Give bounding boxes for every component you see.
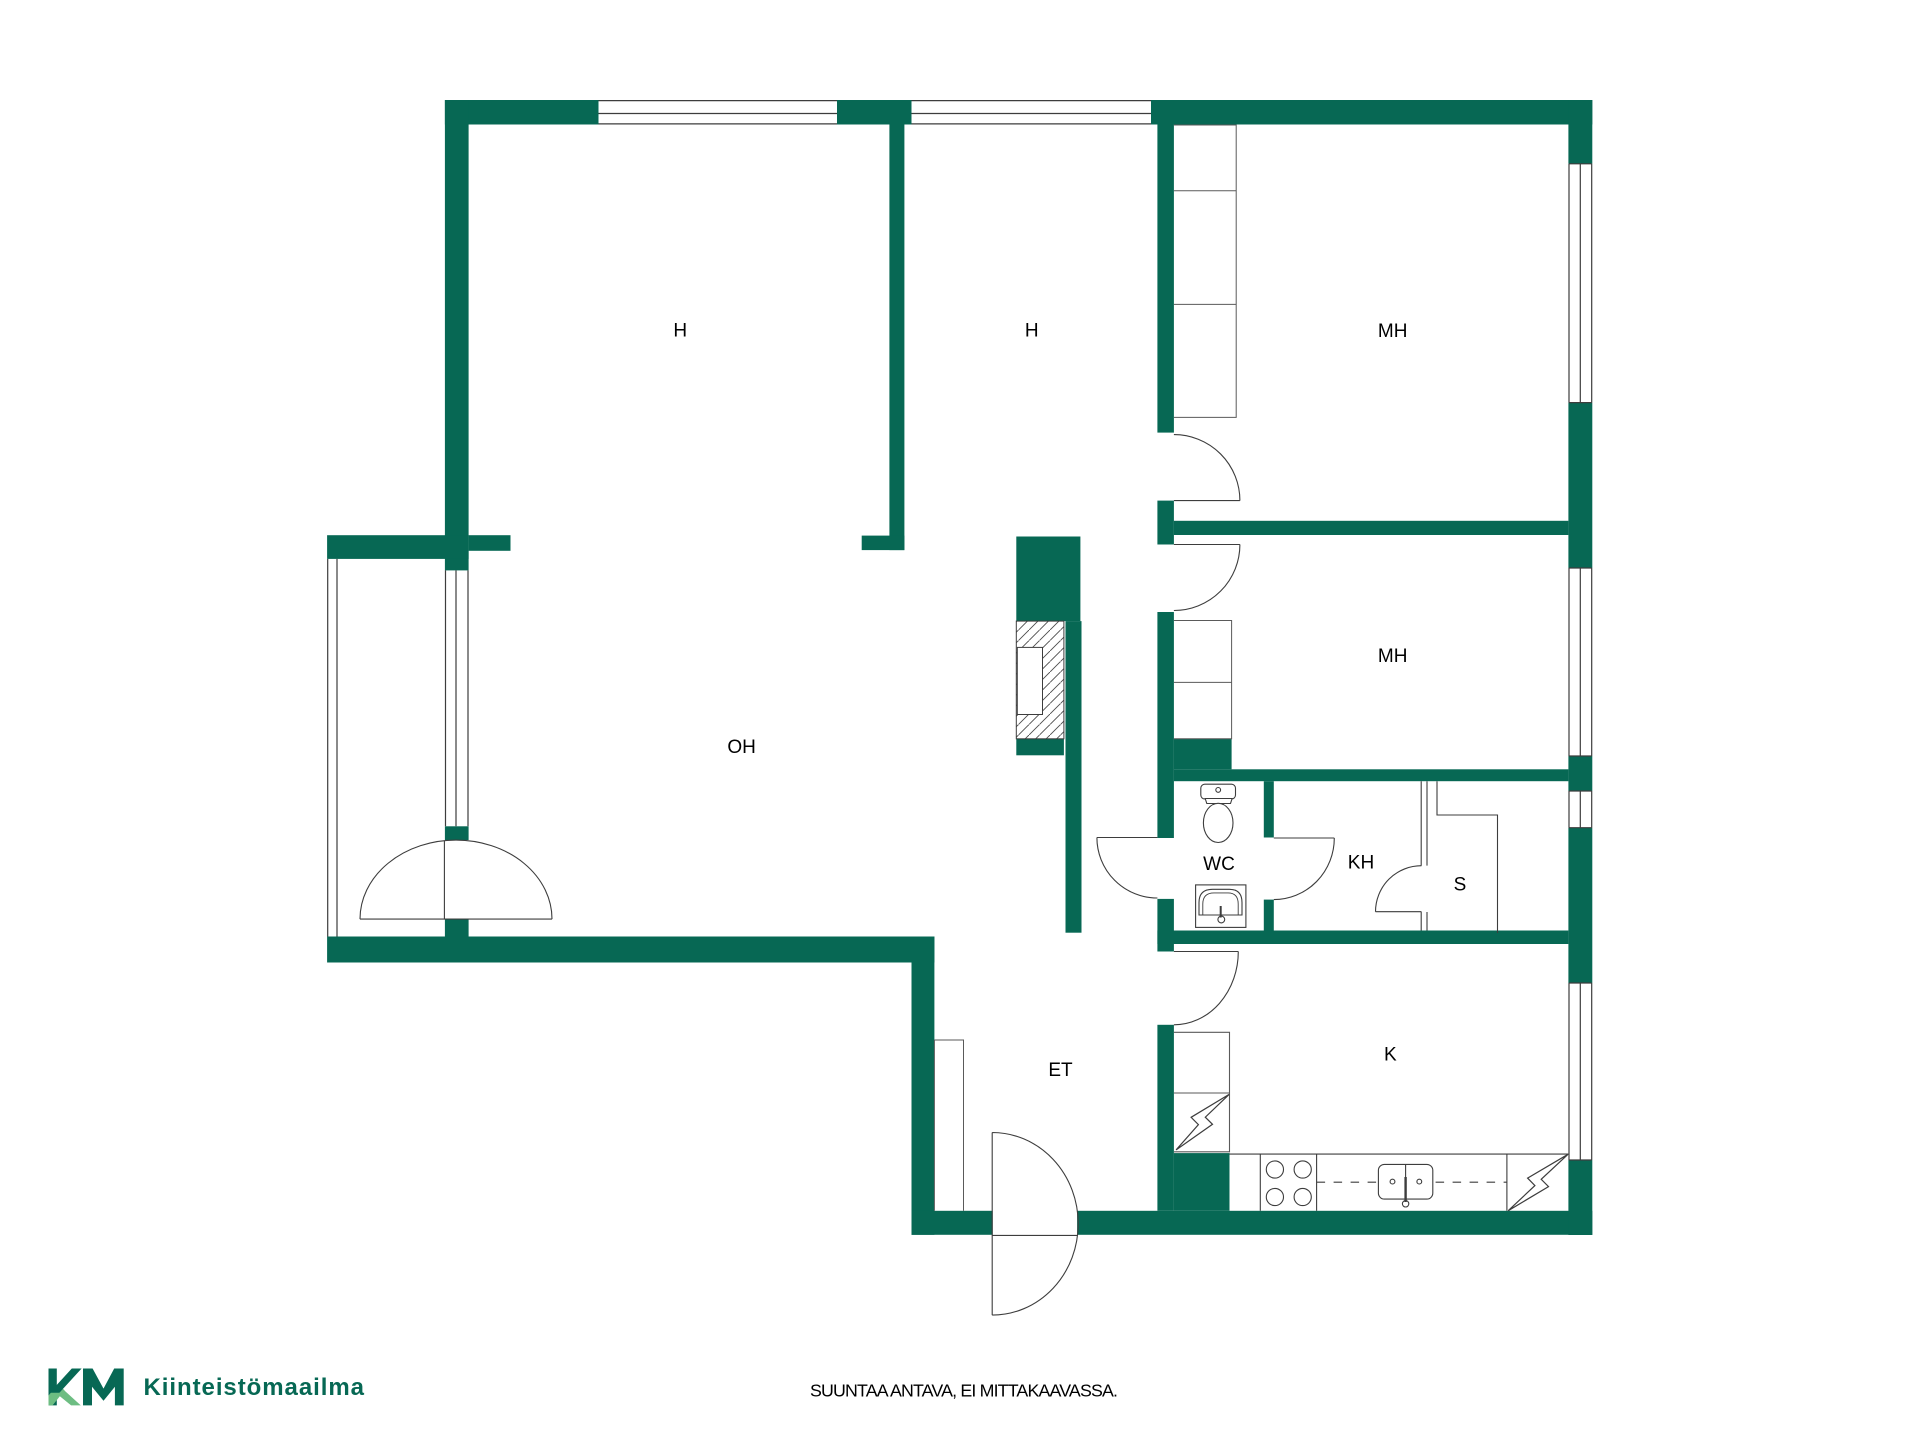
svg-text:ET: ET bbox=[1048, 1060, 1073, 1081]
svg-text:MH: MH bbox=[1378, 646, 1408, 667]
svg-text:KH: KH bbox=[1348, 853, 1374, 874]
svg-text:SUUNTAA ANTAVA, EI MITTAKAAVAS: SUUNTAA ANTAVA, EI MITTAKAAVASSA. bbox=[810, 1381, 1118, 1401]
svg-text:WC: WC bbox=[1203, 854, 1235, 875]
svg-text:OH: OH bbox=[727, 737, 756, 758]
svg-text:MH: MH bbox=[1378, 321, 1408, 342]
svg-text:H: H bbox=[1025, 320, 1039, 341]
svg-text:S: S bbox=[1454, 875, 1467, 896]
svg-text:K: K bbox=[1384, 1045, 1397, 1066]
svg-text:Kiinteistömaailma: Kiinteistömaailma bbox=[144, 1374, 365, 1401]
svg-text:H: H bbox=[673, 320, 687, 341]
